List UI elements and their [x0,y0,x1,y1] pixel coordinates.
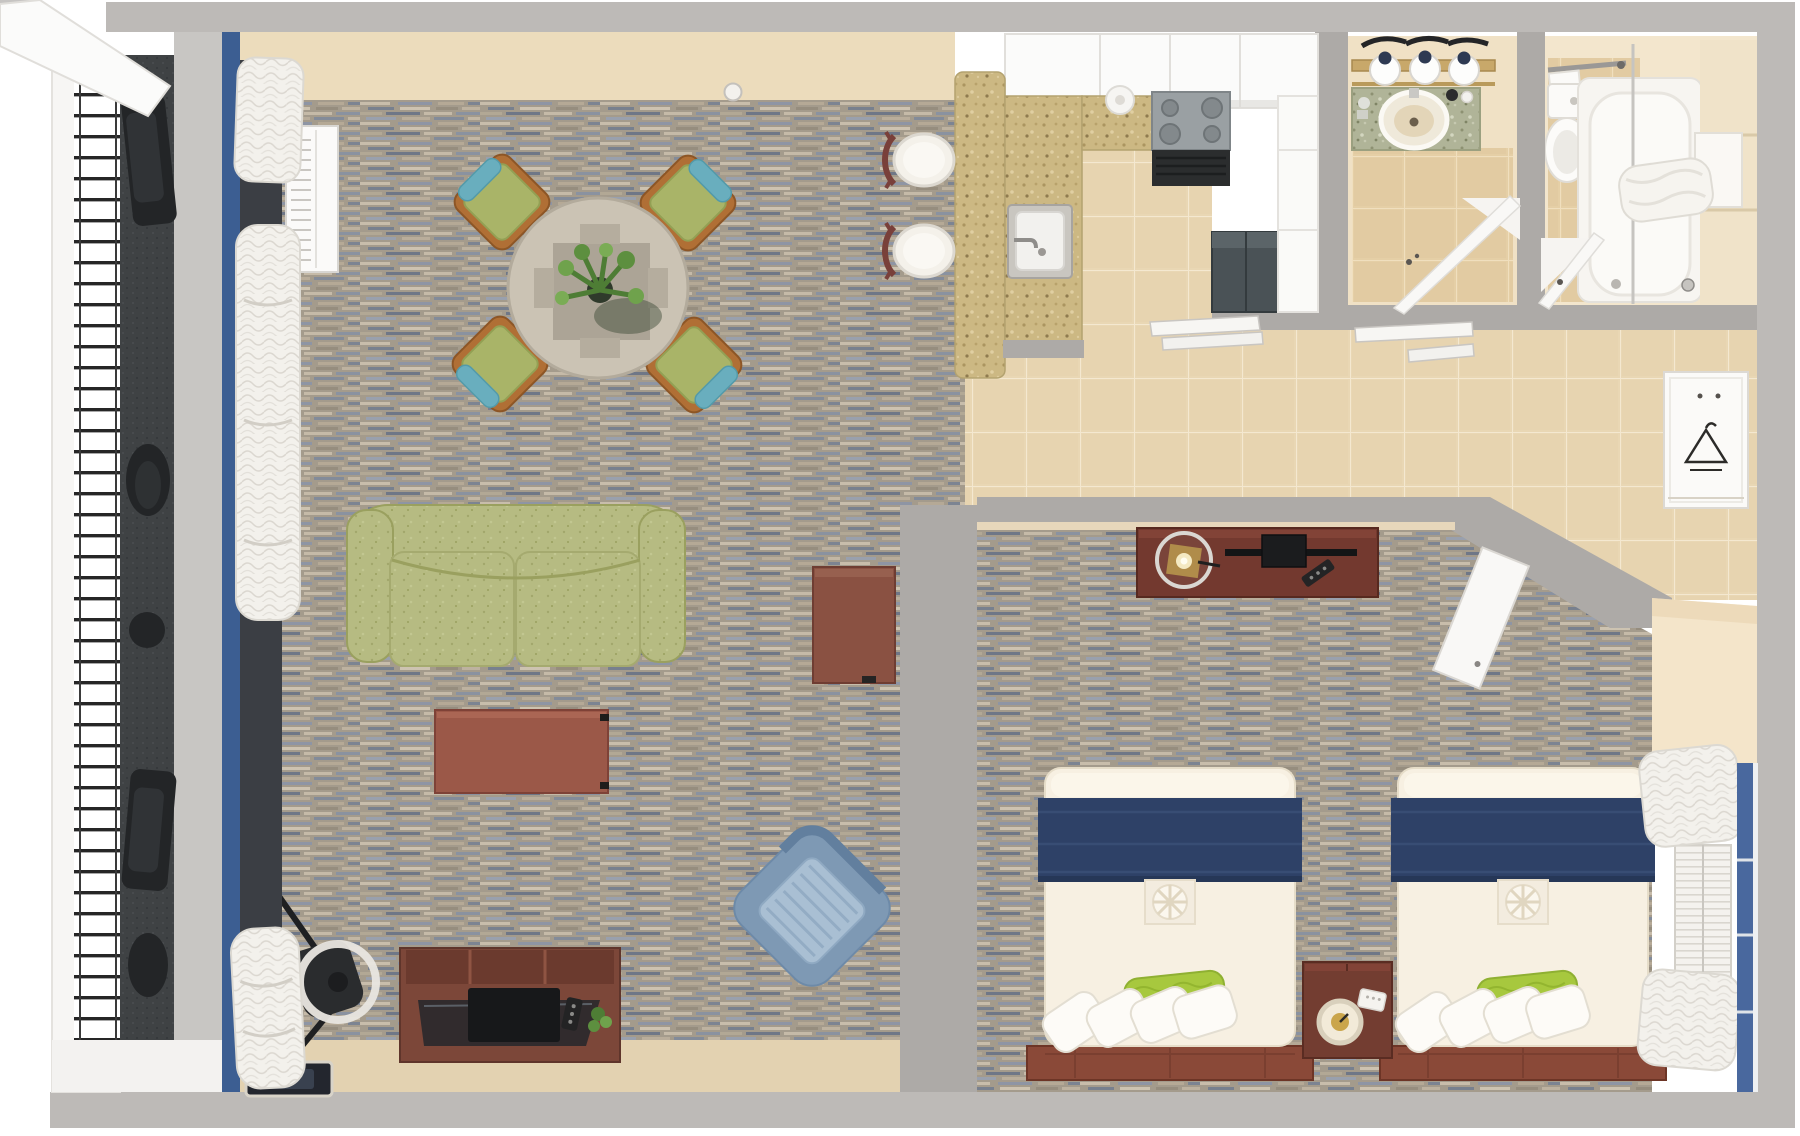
bath2-tub-drain [1611,279,1621,289]
bedroom-blue-window-strip [1737,763,1753,1092]
wall-balcony-living [174,32,222,1092]
tv-dresser [1137,528,1378,597]
kitchen-sink [1008,205,1072,278]
alarm-clock [1319,1001,1361,1043]
bathroom-vanity-room [1345,36,1520,308]
bath2-tub-faucet [1682,279,1694,291]
curtain-bundle-bottom [230,926,306,1089]
kitchen-fridge [1212,232,1280,312]
floorplan-svg [0,0,1800,1136]
curtain-bundle-middle [236,225,300,620]
floorplan-stage [0,0,1800,1136]
bed-1 [1027,768,1313,1080]
kitchen-counter-end-cap [1003,340,1084,358]
console-compartments [406,950,614,984]
kitchen-sink-drain [1038,248,1046,256]
bedroom-tv [1262,535,1306,567]
bath1-faucet [1409,88,1419,98]
wall-bath1-left [1315,32,1348,330]
media-console [400,948,620,1062]
side-table [813,567,895,683]
ceiling-detector [725,84,742,101]
bedroom-curtain-top [1637,743,1744,849]
bath1-sink [1381,88,1447,148]
console-tv [468,988,560,1042]
sofa-cushion-right [516,552,640,666]
kitchen-bar-counter [955,72,1005,378]
wall-living-bedroom [900,505,977,1092]
kitchen-oven [1152,150,1230,186]
wall-top [106,2,1795,32]
sofa-arm-right [639,510,685,662]
curtain-bundle-top [234,57,304,183]
sofa [347,505,685,666]
living-cream-strip-top [222,30,955,102]
nightstand [1303,962,1392,1058]
sofa-cushion-left [390,552,514,666]
wall-right [1757,2,1795,1128]
bed-2 [1380,768,1666,1080]
bedroom-curtain-bottom [1636,968,1742,1072]
balcony-sill [52,1040,222,1092]
kitchen-cabinet-column [1278,96,1318,312]
sofa-arm-left [347,510,393,662]
wall-bath-middle [1517,32,1545,330]
closet-panel [1664,372,1748,508]
kitchen-stove [1152,92,1230,186]
coffee-table [435,710,609,793]
balcony-railing [74,60,122,1085]
